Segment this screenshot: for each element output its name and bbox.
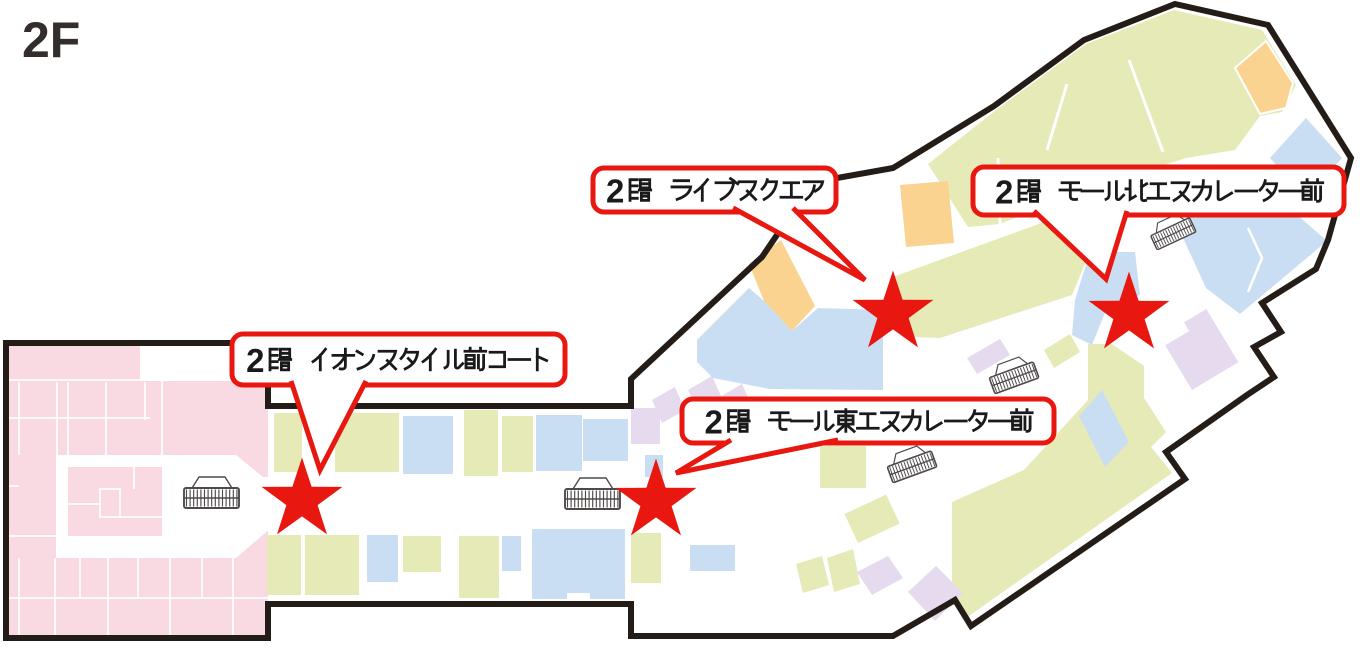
svg-text:2F: 2F bbox=[22, 12, 80, 68]
svg-text:2: 2 bbox=[995, 173, 1013, 210]
svg-text:2: 2 bbox=[246, 342, 264, 379]
svg-text:2: 2 bbox=[705, 403, 723, 440]
svg-text:2: 2 bbox=[606, 172, 624, 209]
